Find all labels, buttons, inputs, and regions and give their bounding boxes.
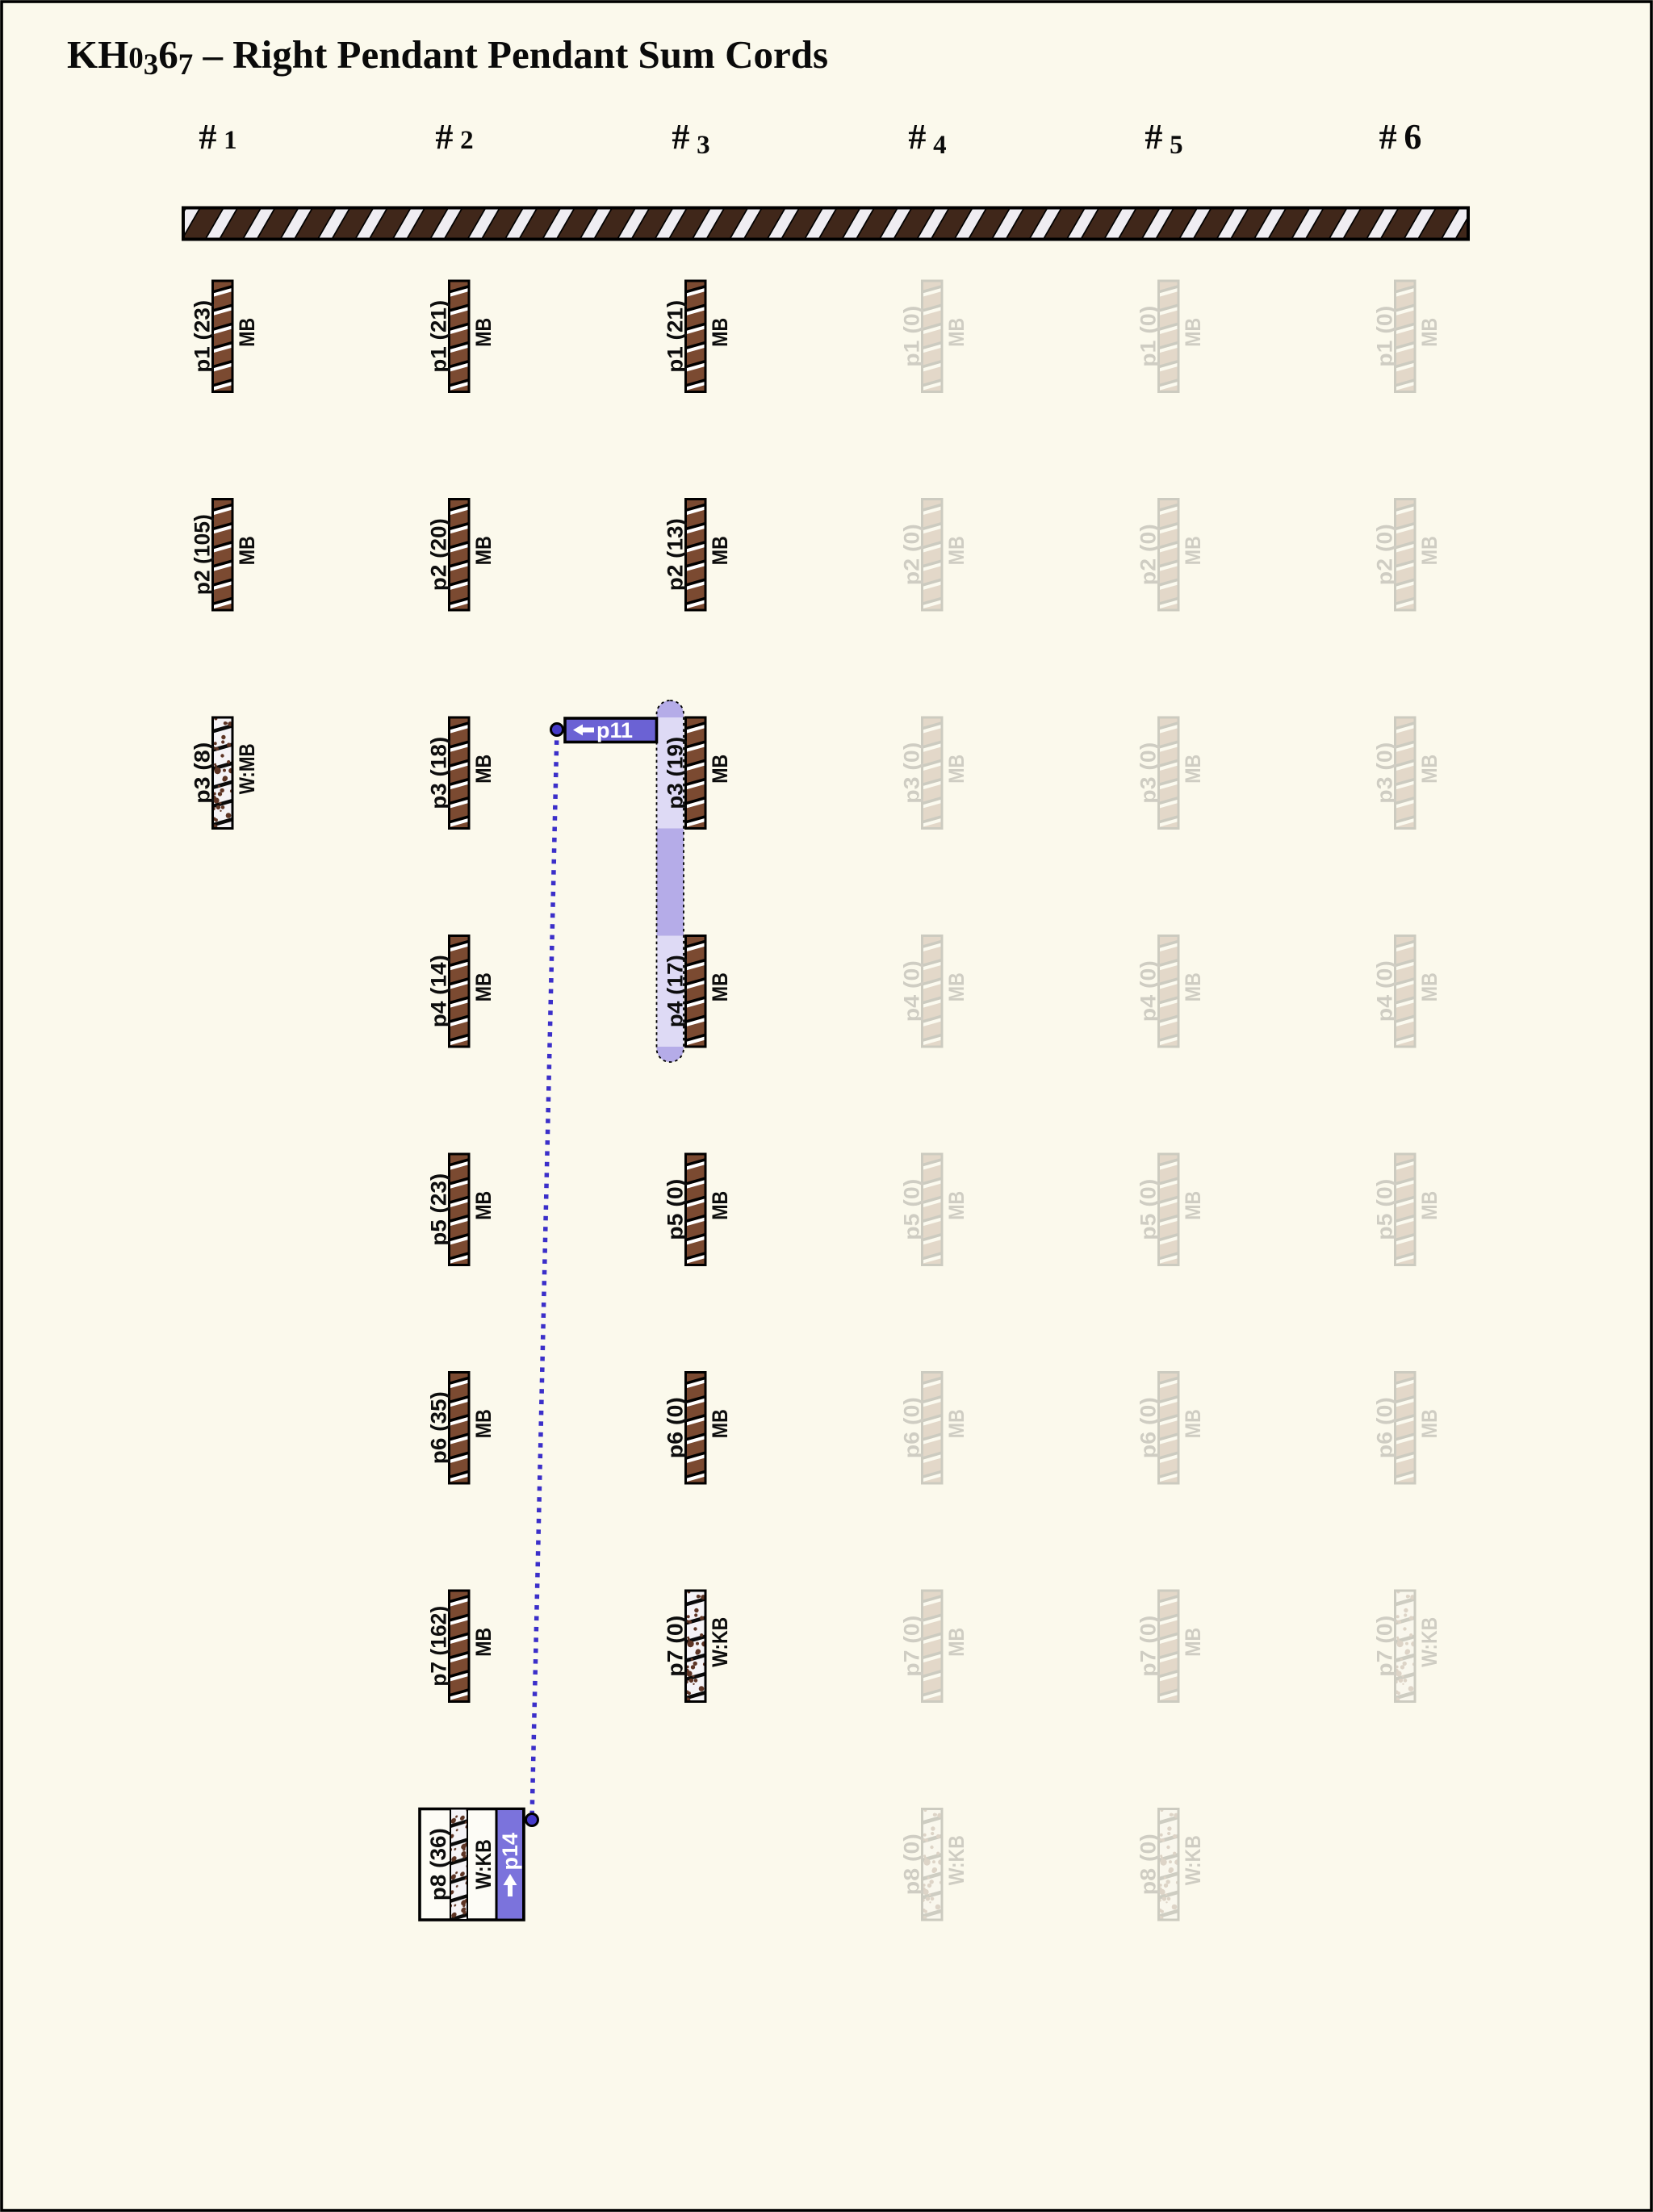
svg-text:p8 (0): p8 (0) xyxy=(1136,1834,1161,1895)
svg-text:MB: MB xyxy=(1417,1191,1442,1220)
svg-text:p3 (0): p3 (0) xyxy=(1373,742,1397,804)
svg-text:p1 (21): p1 (21) xyxy=(663,300,688,373)
svg-text:p5 (0): p5 (0) xyxy=(900,1179,924,1240)
svg-text:p4 (0): p4 (0) xyxy=(900,960,924,1022)
svg-text:MB: MB xyxy=(471,972,496,1001)
svg-text:p7 (0): p7 (0) xyxy=(900,1616,924,1677)
svg-text:MB: MB xyxy=(471,536,496,565)
svg-text:W:KB: W:KB xyxy=(471,1839,496,1889)
svg-text:MB: MB xyxy=(471,1628,496,1657)
svg-text:W:KB: W:KB xyxy=(1181,1835,1205,1885)
svg-text:MB: MB xyxy=(708,318,732,347)
svg-text:MB: MB xyxy=(708,972,732,1001)
svg-text:MB: MB xyxy=(235,536,259,565)
svg-text:MB: MB xyxy=(1181,972,1205,1001)
svg-text:p3 (8): p3 (8) xyxy=(190,742,215,804)
svg-text:p11: p11 xyxy=(596,718,633,742)
svg-text:p7 (162): p7 (162) xyxy=(427,1606,451,1687)
svg-text:p1 (23): p1 (23) xyxy=(190,300,215,373)
svg-text:p6 (0): p6 (0) xyxy=(1373,1397,1397,1458)
svg-text:p2 (13): p2 (13) xyxy=(663,518,688,591)
svg-text:MB: MB xyxy=(944,536,969,565)
svg-text:W:KB: W:KB xyxy=(1417,1617,1442,1667)
svg-text:p7 (0): p7 (0) xyxy=(1136,1616,1161,1677)
svg-text:MB: MB xyxy=(1417,1409,1442,1438)
svg-text:MB: MB xyxy=(1181,1628,1205,1657)
svg-text:p4 (0): p4 (0) xyxy=(1373,960,1397,1022)
svg-text:W:KB: W:KB xyxy=(708,1617,732,1667)
svg-text:MB: MB xyxy=(471,755,496,784)
svg-text:p3 (18): p3 (18) xyxy=(427,737,451,809)
svg-text:MB: MB xyxy=(1181,1409,1205,1438)
svg-text:W:KB: W:KB xyxy=(944,1835,969,1885)
svg-text:MB: MB xyxy=(1417,318,1442,347)
svg-text:p4 (0): p4 (0) xyxy=(1136,960,1161,1022)
svg-text:MB: MB xyxy=(1181,1191,1205,1220)
svg-text:p6 (35): p6 (35) xyxy=(427,1391,451,1464)
svg-text:p7 (0): p7 (0) xyxy=(1373,1616,1397,1677)
svg-text:MB: MB xyxy=(708,1409,732,1438)
svg-text:p2 (105): p2 (105) xyxy=(190,514,215,595)
svg-text:MB: MB xyxy=(471,1191,496,1220)
svg-text:MB: MB xyxy=(235,318,259,347)
svg-text:p14: p14 xyxy=(498,1833,522,1871)
svg-text:p3 (19): p3 (19) xyxy=(663,737,688,809)
svg-text:p2 (0): p2 (0) xyxy=(900,524,924,585)
svg-text:MB: MB xyxy=(471,1409,496,1438)
svg-text:p6 (0): p6 (0) xyxy=(1136,1397,1161,1458)
svg-text:p3 (0): p3 (0) xyxy=(900,742,924,804)
svg-text:p1 (0): p1 (0) xyxy=(1373,306,1397,367)
svg-text:MB: MB xyxy=(1181,536,1205,565)
svg-text:MB: MB xyxy=(944,318,969,347)
svg-text:p5 (0): p5 (0) xyxy=(1136,1179,1161,1240)
svg-text:MB: MB xyxy=(708,536,732,565)
svg-text:p2 (0): p2 (0) xyxy=(1136,524,1161,585)
svg-text:MB: MB xyxy=(1417,972,1442,1001)
svg-text:MB: MB xyxy=(1181,755,1205,784)
svg-text:MB: MB xyxy=(944,755,969,784)
svg-text:p5 (23): p5 (23) xyxy=(427,1173,451,1246)
svg-text:MB: MB xyxy=(1181,318,1205,347)
svg-text:MB: MB xyxy=(471,318,496,347)
svg-text:p8 (36): p8 (36) xyxy=(426,1828,450,1900)
svg-text:p1 (0): p1 (0) xyxy=(1136,306,1161,367)
svg-text:MB: MB xyxy=(708,755,732,784)
svg-text:p3 (0): p3 (0) xyxy=(1136,742,1161,804)
svg-text:MB: MB xyxy=(944,1628,969,1657)
svg-text:# 6: # 6 xyxy=(1379,117,1422,157)
svg-text:MB: MB xyxy=(708,1191,732,1220)
svg-text:p6 (0): p6 (0) xyxy=(900,1397,924,1458)
svg-text:p7 (0): p7 (0) xyxy=(663,1616,688,1677)
svg-text:p2 (20): p2 (20) xyxy=(427,518,451,591)
svg-text:p4 (14): p4 (14) xyxy=(427,955,451,1027)
svg-text:MB: MB xyxy=(1417,755,1442,784)
svg-text:W:MB: W:MB xyxy=(235,743,259,794)
svg-text:MB: MB xyxy=(944,1191,969,1220)
svg-text:p1 (0): p1 (0) xyxy=(900,306,924,367)
svg-text:p1 (21): p1 (21) xyxy=(427,300,451,373)
svg-text:p8 (0): p8 (0) xyxy=(900,1834,924,1895)
svg-text:p5 (0): p5 (0) xyxy=(663,1179,688,1240)
svg-text:MB: MB xyxy=(944,1409,969,1438)
svg-text:p2 (0): p2 (0) xyxy=(1373,524,1397,585)
svg-text:MB: MB xyxy=(944,972,969,1001)
svg-text:p4 (17): p4 (17) xyxy=(663,955,688,1027)
svg-text:p5 (0): p5 (0) xyxy=(1373,1179,1397,1240)
svg-text:p6 (0): p6 (0) xyxy=(663,1397,688,1458)
svg-text:MB: MB xyxy=(1417,536,1442,565)
